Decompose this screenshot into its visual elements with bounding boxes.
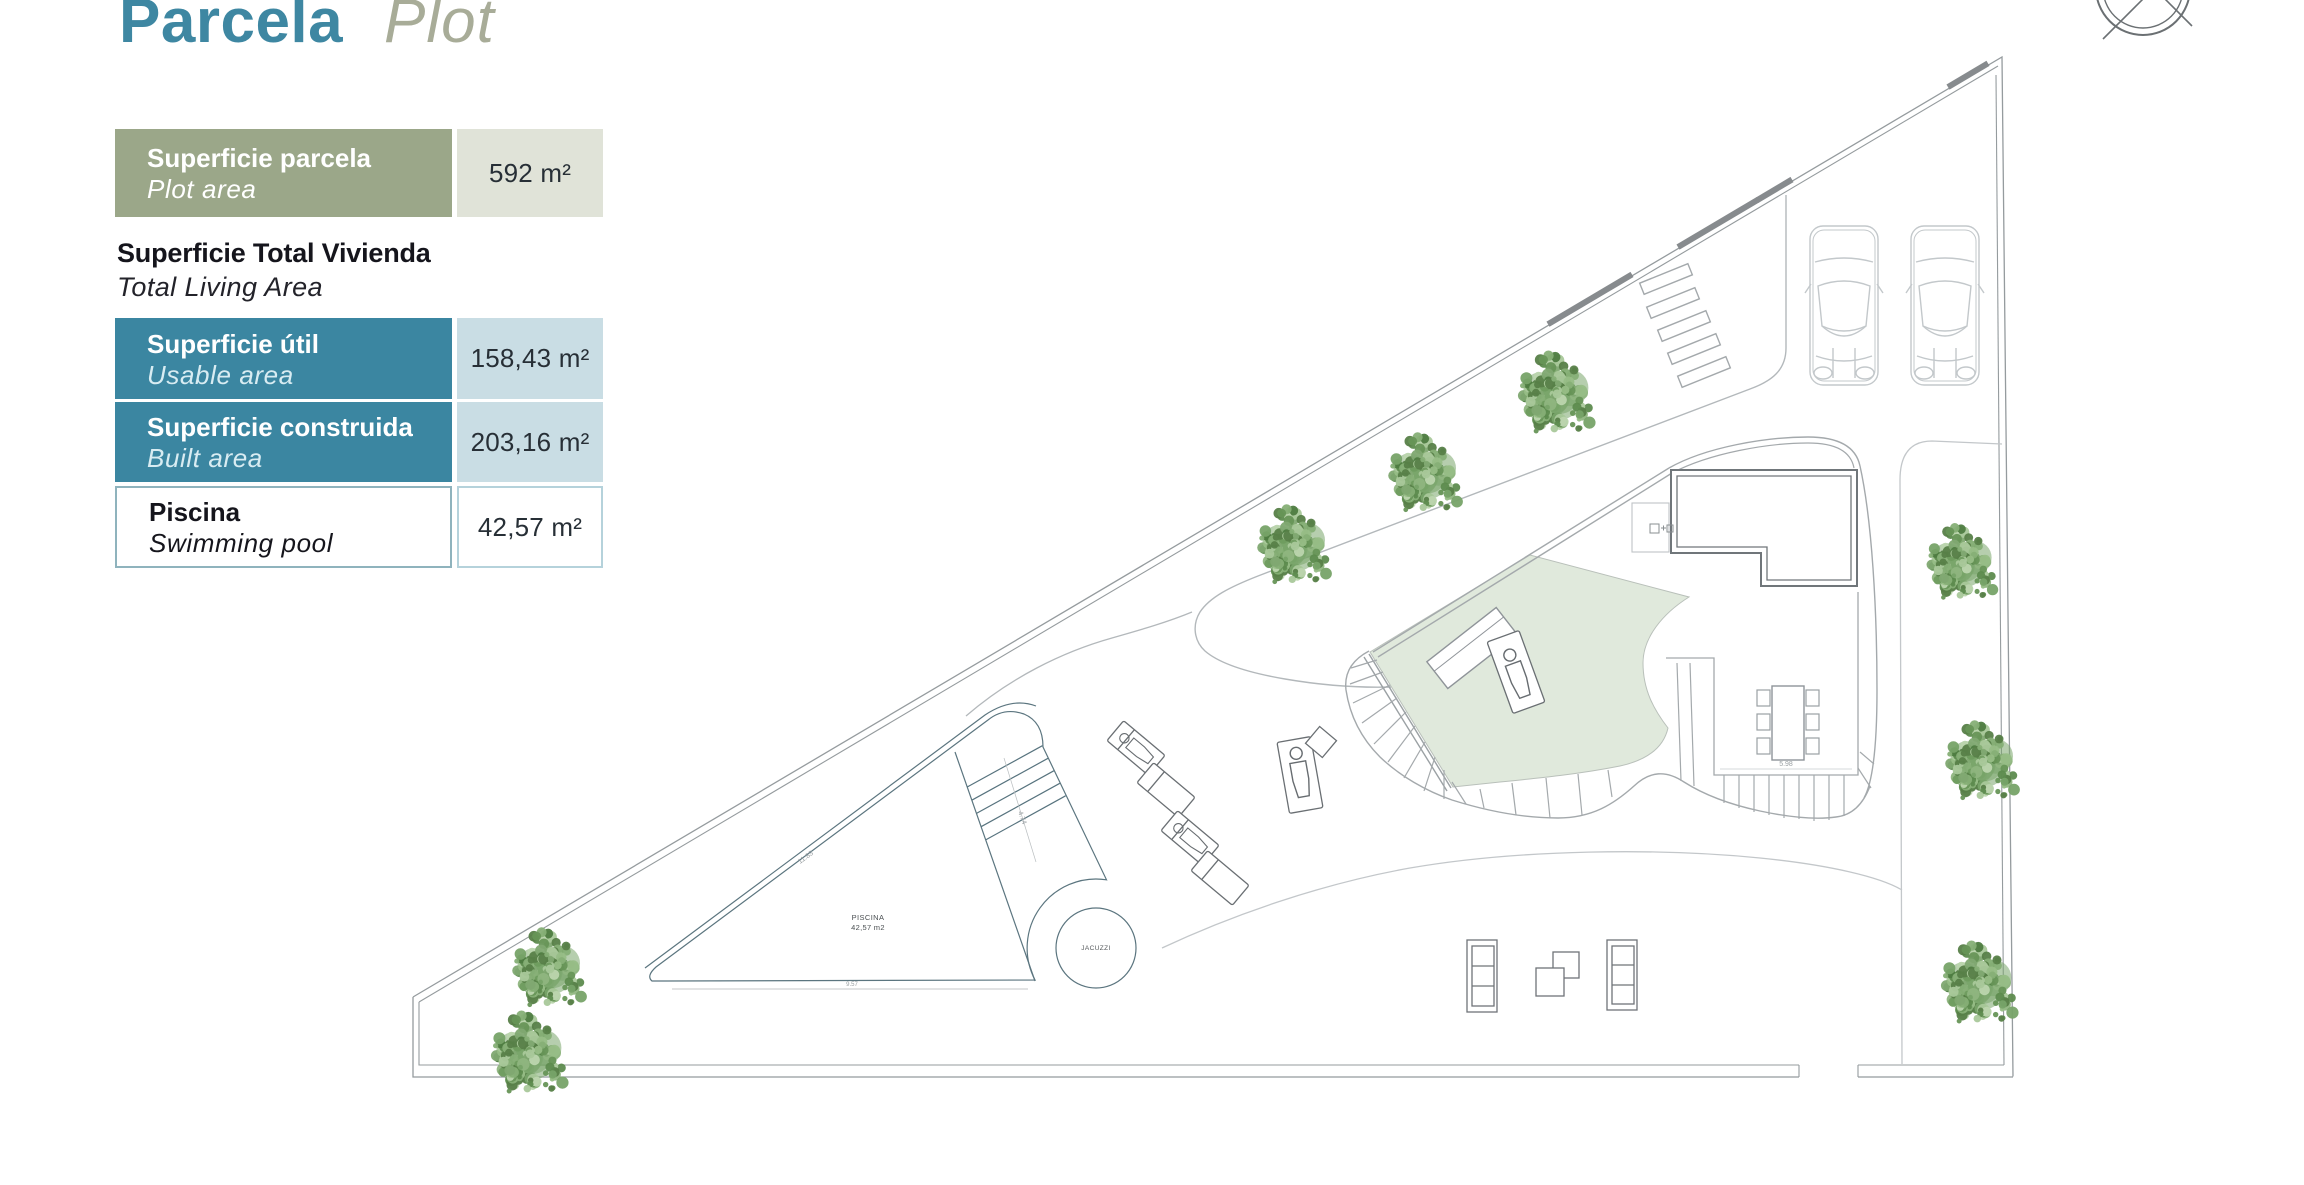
svg-text:5.98: 5.98 — [1779, 761, 1793, 768]
svg-text:42,57 m2: 42,57 m2 — [851, 923, 885, 932]
svg-text:PISCINA: PISCINA — [852, 913, 885, 922]
svg-text:9.57: 9.57 — [846, 982, 858, 988]
svg-text:4.74: 4.74 — [1016, 810, 1027, 825]
svg-text:JACUZZI: JACUZZI — [1081, 945, 1111, 952]
